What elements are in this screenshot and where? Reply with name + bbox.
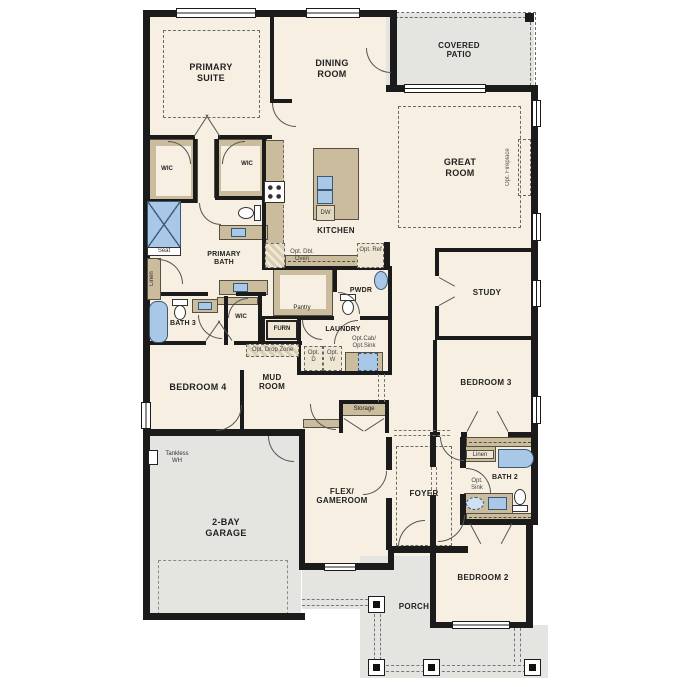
wall [386,437,392,470]
porch-railing [514,628,515,662]
porch-railing [520,628,521,662]
wall [437,248,533,252]
window [452,621,510,629]
label-primary-suite: PRIMARY SUITE [180,62,242,83]
window [532,396,541,424]
label-wic-3: WIC [230,314,252,321]
window [532,280,541,307]
sink [198,302,212,310]
opt-laundry-sink [358,353,378,371]
wall [435,306,439,340]
label-pwdr: PWDR [344,287,378,295]
label-bedroom-4: BEDROOM 4 [164,382,232,393]
kitchen-sink [317,176,333,190]
wall [143,429,305,436]
window [404,84,486,93]
wall [388,546,468,553]
wall [215,196,266,200]
wall [143,613,305,620]
label-mud-room: MUD ROOM [252,373,292,392]
opt-dryer-label: Opt. D [305,350,322,364]
label-laundry: LAUNDRY [314,326,372,334]
wall [240,370,244,433]
opt-dbl-oven-label: Opt. Dbl. Oven [286,249,318,263]
cooktop [264,181,285,203]
wall [433,340,437,435]
bathtub-bath2 [498,449,534,468]
label-wic-2: WIC [236,161,258,168]
wall [333,268,337,292]
furn-label: FURN [266,326,298,333]
porch-railing [380,614,381,660]
bathtub-bath3 [149,301,168,343]
wall [224,296,228,345]
wall [526,523,533,628]
window [141,402,151,429]
wall [508,432,534,437]
opening-dashed [394,435,450,436]
opening-dashed [394,430,450,431]
shower [147,201,181,248]
wall [430,495,436,523]
opt-drop-zone-label: Opt. Drop Zone [247,347,298,354]
tankless-water-heater [148,450,158,465]
label-kitchen: KITCHEN [304,226,368,235]
wall [430,437,436,467]
toilet [172,299,188,321]
opening-dashed [378,374,379,402]
wall [385,400,389,433]
wall [339,400,343,433]
label-bedroom-2: BEDROOM 2 [452,573,514,582]
wall [339,400,389,404]
window [532,213,541,241]
wall [435,248,439,276]
dw-label: DW [316,210,335,217]
opt-fireplace-label: Opt. Fireplace [505,139,517,196]
wall [384,242,390,270]
opt-fireplace-box [518,139,531,196]
linen2-label: Linen [466,450,494,459]
porch-post [423,659,440,676]
opening-dashed [384,374,385,402]
wall [390,10,397,90]
opt-ref-label: Opt. Ref [359,247,382,254]
wall [437,336,533,340]
window [324,563,356,571]
label-wic-1: WIC [156,166,178,173]
label-great-room: GREAT ROOM [434,157,486,178]
sink [233,283,248,292]
tankless-wh-label: Tankless WH [160,451,194,465]
opt-washer-label: Opt. W [324,350,341,364]
sink [231,228,246,237]
label-bedroom-3: BEDROOM 3 [455,378,517,387]
wall [297,371,389,375]
window [306,8,360,18]
toilet [512,488,528,512]
label-foyer: FOYER [404,489,444,498]
window [176,8,256,18]
label-pantry: Pantry [288,305,316,312]
label-storage: Storage [344,406,384,413]
floor-plan: Opt. Fireplace Opt. Dbl. Oven Opt. Ref O… [0,0,687,687]
wall [299,429,305,569]
opt-sink-dashed [466,497,484,510]
patio-post [525,13,534,22]
seat-label: Seat [147,248,181,255]
window [532,100,541,127]
wall [270,17,274,103]
porch-railing [386,671,526,672]
wall [193,139,197,203]
porch-post [368,659,385,676]
label-bath-2: BATH 2 [492,474,518,482]
label-porch: PORCH [394,602,434,611]
toilet [238,205,262,221]
wall [215,139,219,199]
garage-door-dashed [158,560,288,615]
label-dining-room: DINING ROOM [308,58,356,79]
porch-railing [374,614,375,660]
label-covered-patio: COVERED PATIO [430,41,488,60]
wall [388,268,392,375]
label-flex-gameroom: FLEX/ GAMEROOM [309,487,375,506]
wall [150,135,195,139]
label-bath-3: BATH 3 [170,320,196,328]
label-garage: 2-BAY GARAGE [196,517,256,538]
wall [262,316,301,319]
sink [488,497,507,510]
porch-railing [386,665,526,666]
label-study: STUDY [462,288,512,297]
kitchen-sink [317,190,333,204]
label-primary-bath: PRIMARY BATH [200,251,248,268]
porch-railing [302,599,368,600]
opt-dbl-oven-box [265,243,285,268]
porch-post [368,596,385,613]
wall [386,498,392,550]
porch-post [524,659,541,676]
wall [262,316,265,343]
porch-railing [302,605,368,606]
